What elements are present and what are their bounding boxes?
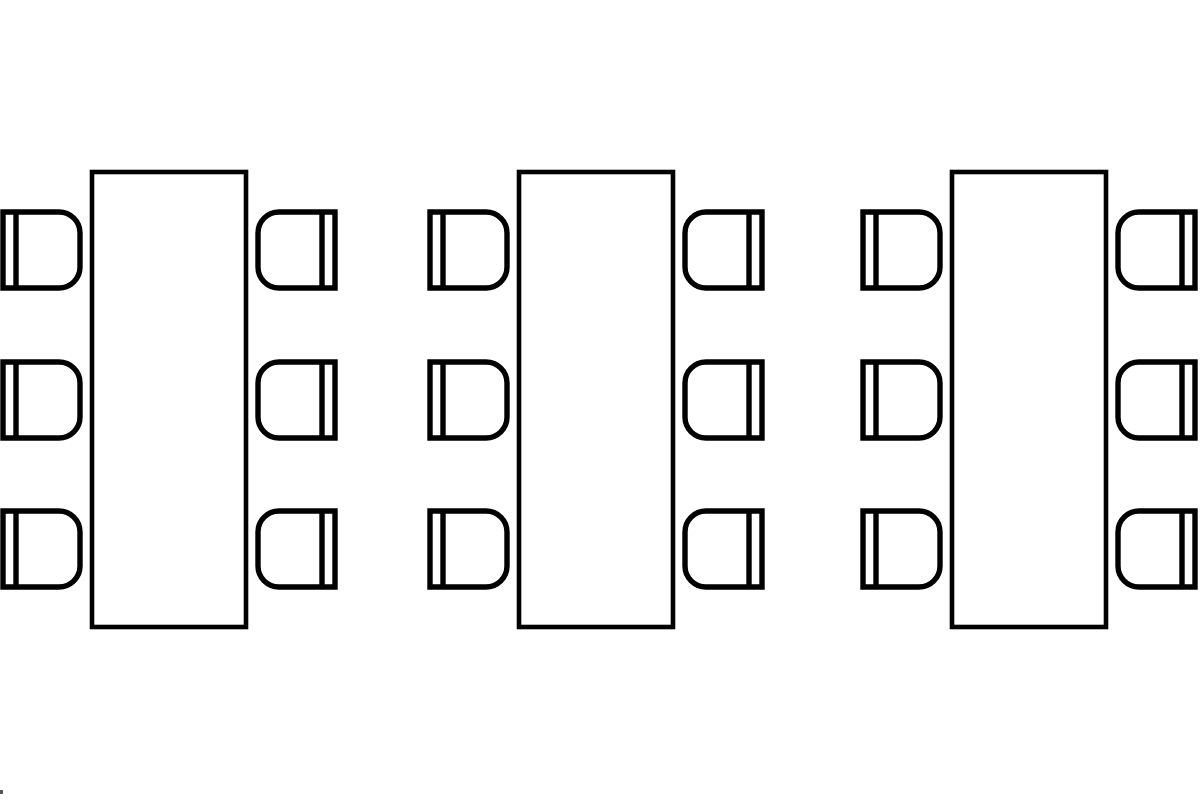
seating-diagram <box>0 0 1200 800</box>
diagram-canvas <box>0 0 1200 800</box>
chair-right-1 <box>1118 212 1195 288</box>
table-group-2 <box>430 172 762 627</box>
chair-right-1 <box>258 212 335 288</box>
chair-right-2 <box>258 362 335 438</box>
chair-right-1 <box>685 212 762 288</box>
chair-left-3 <box>863 511 940 587</box>
chair-left-1 <box>863 212 940 288</box>
chair-right-3 <box>685 511 762 587</box>
chair-left-2 <box>430 362 507 438</box>
chair-left-2 <box>863 362 940 438</box>
chair-right-3 <box>1118 511 1195 587</box>
chair-left-1 <box>430 212 507 288</box>
table <box>519 172 673 627</box>
chair-left-2 <box>3 362 80 438</box>
table <box>92 172 246 627</box>
chair-left-1 <box>3 212 80 288</box>
chair-left-3 <box>430 511 507 587</box>
table <box>952 172 1106 627</box>
chair-left-3 <box>3 511 80 587</box>
chair-right-2 <box>685 362 762 438</box>
stray-dot <box>0 790 3 794</box>
chair-right-2 <box>1118 362 1195 438</box>
table-group-3 <box>863 172 1195 627</box>
table-group-1 <box>3 172 335 627</box>
chair-right-3 <box>258 511 335 587</box>
